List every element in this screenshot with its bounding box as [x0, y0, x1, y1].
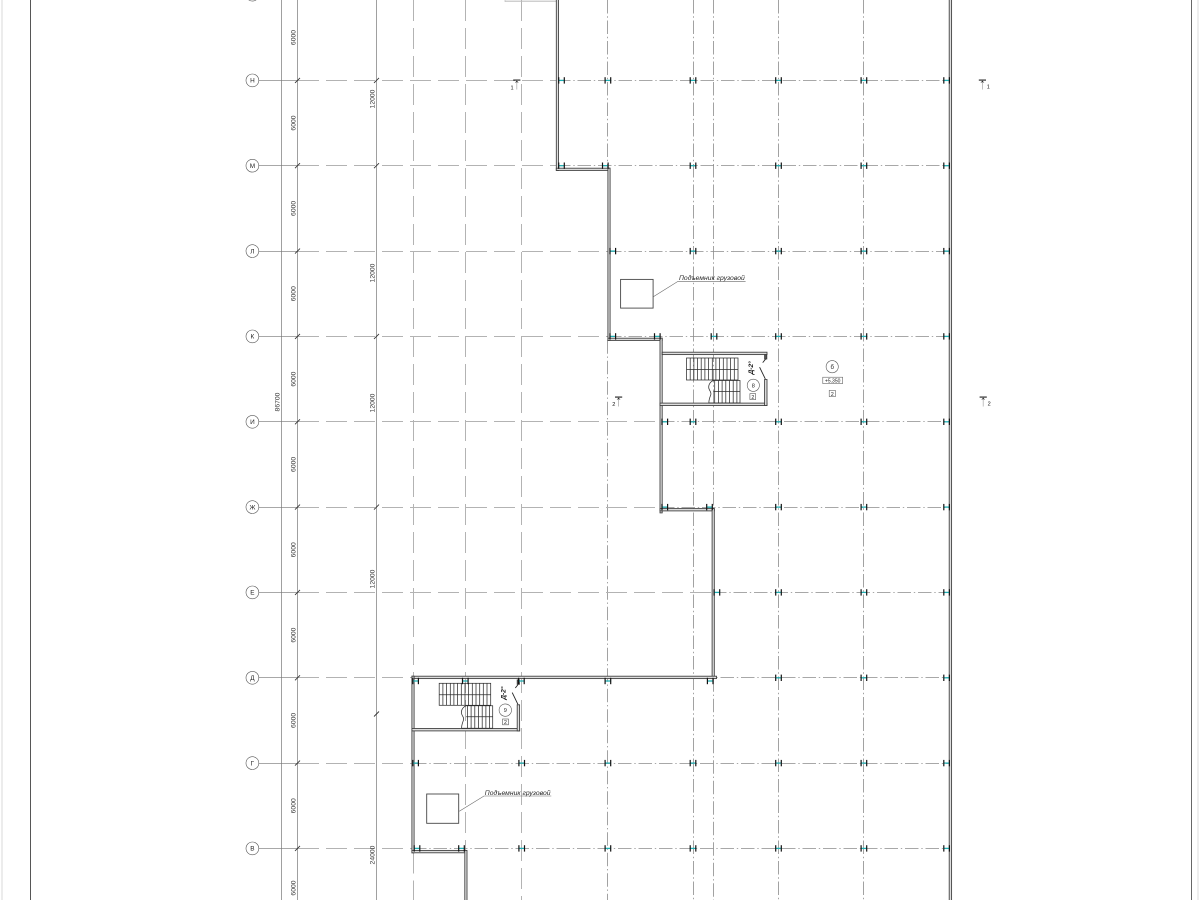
svg-text:24000: 24000	[369, 845, 376, 864]
svg-text:б: б	[830, 365, 834, 371]
svg-text:Л: Л	[250, 248, 254, 255]
svg-text:6000: 6000	[290, 457, 297, 472]
svg-text:М: М	[250, 163, 255, 170]
svg-text:6000: 6000	[290, 880, 297, 895]
svg-text:6000: 6000	[290, 201, 297, 216]
svg-text:+5.350: +5.350	[825, 378, 841, 384]
svg-text:К: К	[251, 334, 255, 341]
svg-text:Подъемник грузовой: Подъемник грузовой	[679, 274, 745, 282]
svg-text:9: 9	[504, 708, 507, 714]
svg-text:6000: 6000	[290, 371, 297, 386]
svg-text:В: В	[250, 846, 254, 853]
svg-text:6000: 6000	[290, 115, 297, 130]
svg-text:2: 2	[504, 720, 507, 726]
svg-text:2: 2	[612, 402, 615, 408]
svg-text:12000: 12000	[369, 263, 376, 282]
svg-text:Д-2°: Д-2°	[747, 361, 755, 376]
svg-text:Г: Г	[251, 760, 255, 767]
svg-text:2: 2	[831, 392, 834, 398]
svg-text:2: 2	[988, 402, 991, 408]
svg-text:1: 1	[987, 85, 990, 91]
svg-text:Ж: Ж	[249, 504, 255, 511]
svg-text:Н: Н	[250, 78, 255, 85]
svg-text:1: 1	[510, 85, 513, 91]
svg-text:6000: 6000	[290, 30, 297, 45]
svg-text:8: 8	[752, 383, 755, 389]
svg-text:6000: 6000	[290, 286, 297, 301]
svg-text:Д: Д	[250, 675, 255, 682]
svg-text:Д-2°: Д-2°	[500, 686, 508, 701]
svg-text:86700: 86700	[275, 392, 282, 411]
svg-text:6000: 6000	[290, 542, 297, 557]
svg-text:6000: 6000	[290, 713, 297, 728]
svg-text:2: 2	[751, 395, 754, 401]
svg-text:6000: 6000	[290, 627, 297, 642]
svg-text:Подъемник грузовой: Подъемник грузовой	[485, 789, 551, 797]
svg-text:12000: 12000	[369, 569, 376, 588]
svg-text:И: И	[250, 419, 255, 426]
svg-text:6000: 6000	[290, 798, 297, 813]
svg-text:12000: 12000	[369, 89, 376, 108]
svg-text:Е: Е	[250, 590, 254, 597]
svg-text:12000: 12000	[369, 393, 376, 412]
